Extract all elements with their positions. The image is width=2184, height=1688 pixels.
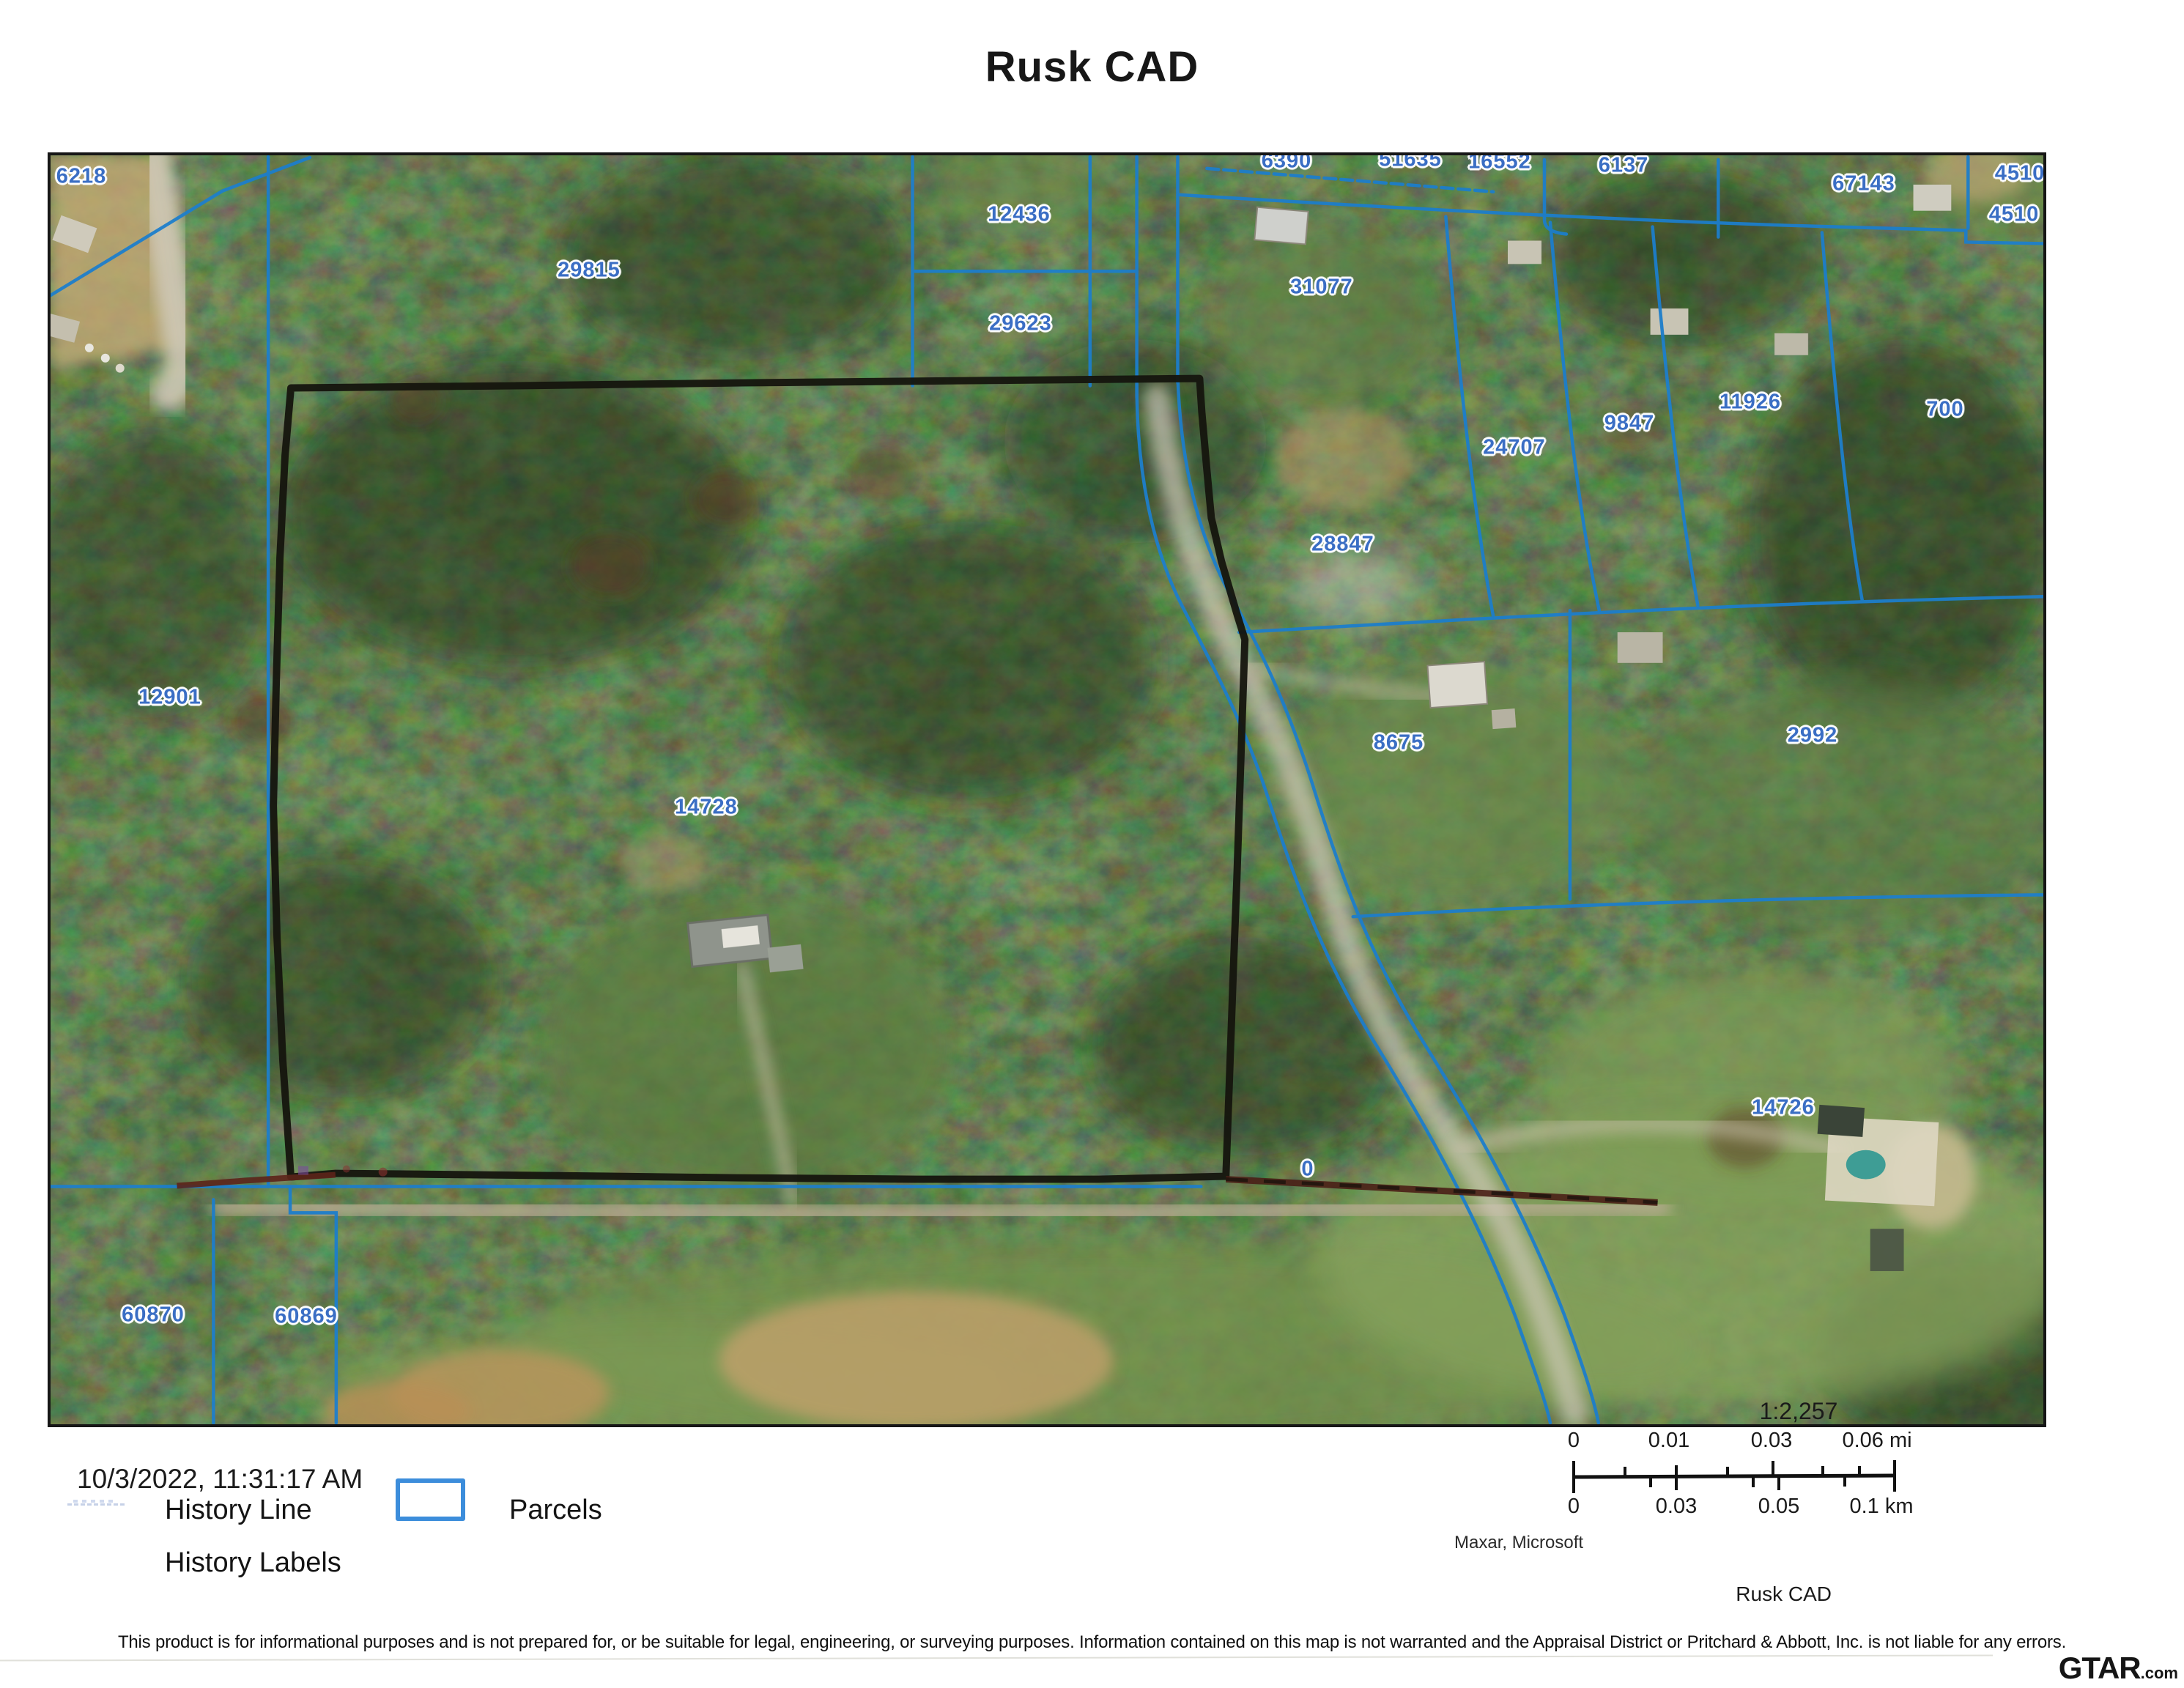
parcel-label-layer: 6218298151243629623639051635165526137671… <box>51 155 2043 1424</box>
parcel-label: 14726 <box>1752 1096 1815 1120</box>
aerial-parcel-map[interactable]: 6218298151243629623639051635165526137671… <box>48 152 2046 1427</box>
parcel-label: 9847 <box>1604 412 1655 436</box>
scanned-map-page: Rusk CAD <box>0 0 2184 1688</box>
parcel-label: 6218 <box>56 165 107 189</box>
parcel-label: 28847 <box>1311 533 1374 557</box>
parcel-label: 31077 <box>1290 275 1353 300</box>
parcels-swatch <box>396 1478 465 1521</box>
parcel-label: 60869 <box>275 1305 338 1329</box>
disclaimer-text: This product is for informational purpos… <box>0 1632 2184 1653</box>
parcel-label: 29815 <box>558 259 621 283</box>
parcel-label: 6390 <box>1262 152 1312 174</box>
scale-km-1: 0.03 <box>1656 1495 1697 1519</box>
scale-mi-0: 0 <box>1568 1429 1580 1453</box>
gtar-watermark: GTAR.com <box>2059 1653 2178 1684</box>
scale-mi-2: 0.03 <box>1751 1429 1792 1453</box>
history-line-swatch <box>67 1503 125 1513</box>
parcel-label: 6137 <box>1599 154 1649 178</box>
page-title: Rusk CAD <box>0 42 2184 92</box>
parcel-label: 51635 <box>1379 152 1442 172</box>
legend-history-line-label: History Line <box>165 1495 312 1526</box>
legend-parcels-label: Parcels <box>509 1495 602 1526</box>
parcel-label: 2992 <box>1788 724 1838 748</box>
export-timestamp: 10/3/2022, 11:31:17 AM <box>77 1464 363 1495</box>
scale-mi-1: 0.01 <box>1648 1429 1689 1453</box>
gtar-watermark-tld: .com <box>2141 1664 2178 1682</box>
scale-bar <box>1568 1456 1912 1498</box>
scan-artifact-line <box>0 1654 1993 1661</box>
parcel-label: 4510 <box>1995 162 2046 186</box>
parcel-label: 24707 <box>1483 436 1546 460</box>
parcel-label: 700 <box>1926 398 1963 422</box>
parcel-label: 29623 <box>989 312 1052 336</box>
parcel-label: 12436 <box>988 203 1051 227</box>
parcel-label: 11926 <box>1720 390 1781 415</box>
map-source: Rusk CAD <box>1670 1582 1832 1606</box>
parcel-label: 16552 <box>1468 152 1531 174</box>
scale-km-3: 0.1 km <box>1849 1495 1913 1519</box>
parcel-label: 4510 <box>1989 203 2040 227</box>
parcel-label: 0 <box>1301 1158 1314 1182</box>
scale-km-0: 0 <box>1568 1495 1580 1519</box>
scale-ratio: 1:2,257 <box>1707 1398 1890 1425</box>
parcel-label: 8675 <box>1374 731 1424 755</box>
parcel-label: 14728 <box>675 796 738 820</box>
parcel-label: 60870 <box>122 1303 185 1328</box>
parcel-label: 67143 <box>1832 172 1895 196</box>
scale-mi-3: 0.06 mi <box>1842 1429 1911 1453</box>
gtar-watermark-name: GTAR <box>2059 1651 2141 1685</box>
parcel-label: 12901 <box>138 686 201 710</box>
scale-km-2: 0.05 <box>1758 1495 1799 1519</box>
imagery-attribution: Maxar, Microsoft <box>1454 1533 1583 1553</box>
legend-history-labels-label: History Labels <box>165 1547 341 1579</box>
